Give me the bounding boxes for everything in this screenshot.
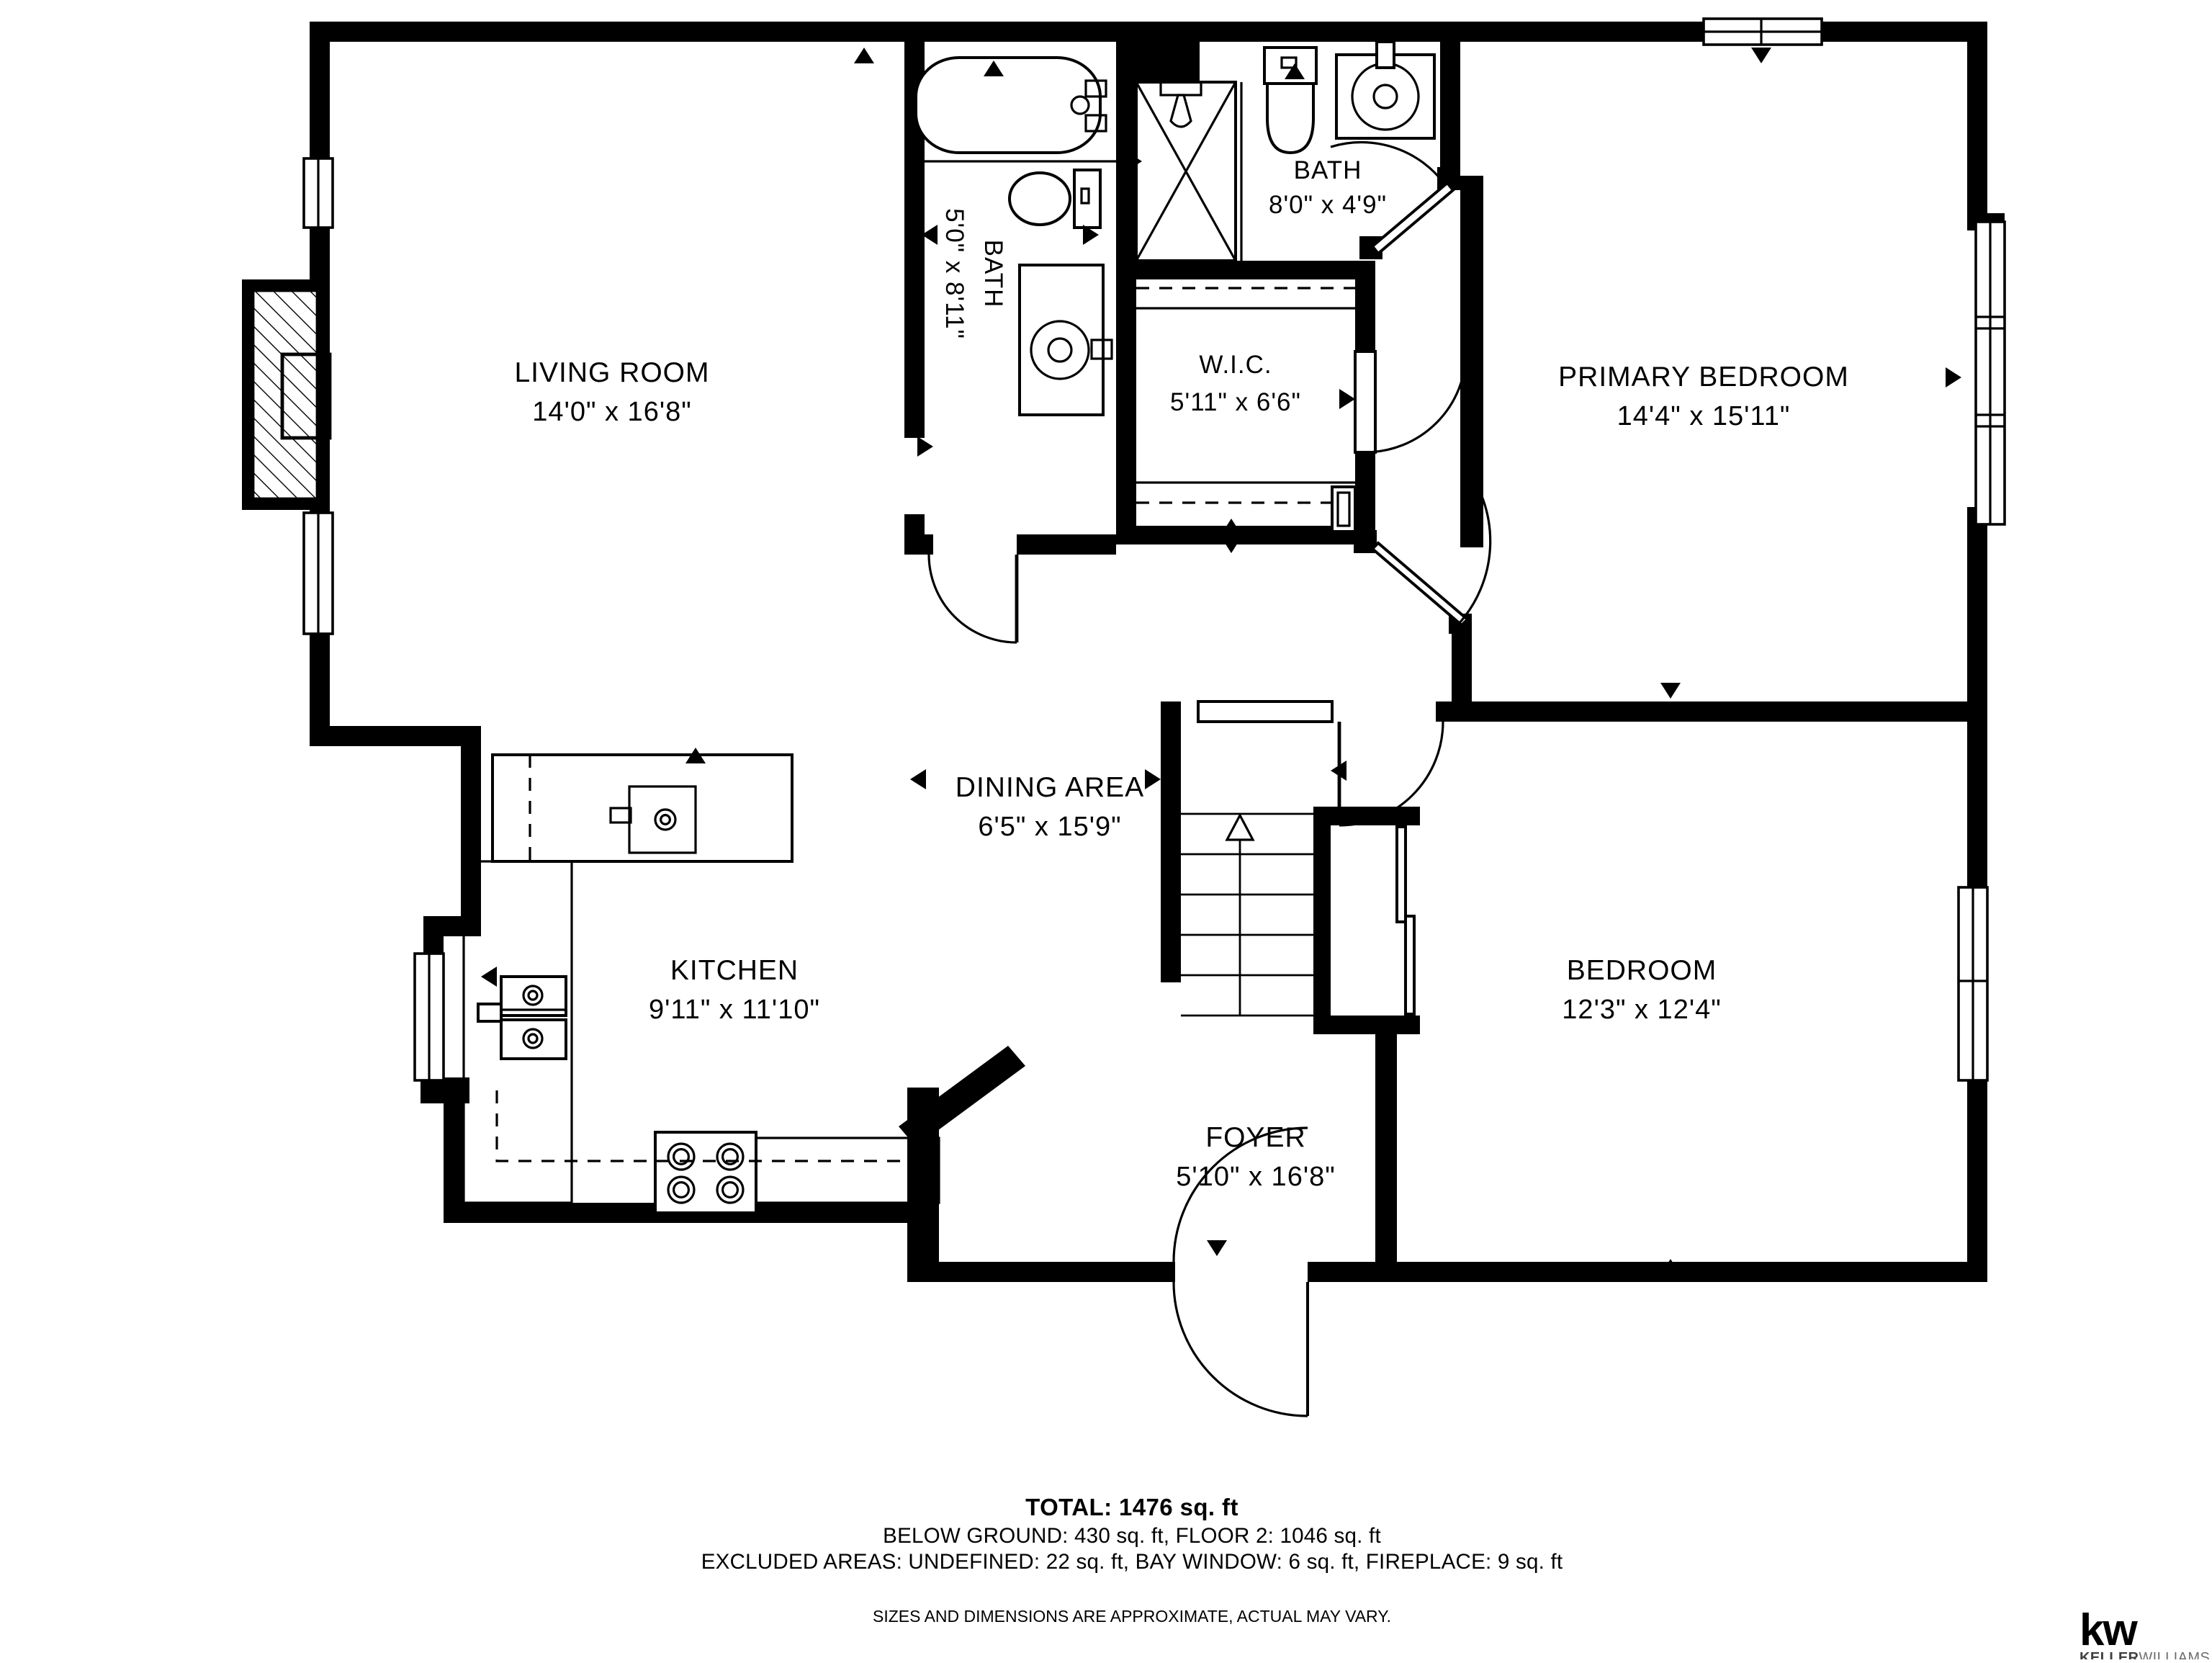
- wall-shower-top-block: [1116, 42, 1200, 82]
- wall-bath1-bottom-b: [1017, 534, 1116, 555]
- wall-kitchen-left-b: [444, 1103, 464, 1214]
- wall-bottom-left: [929, 1262, 1175, 1282]
- primary-top-window: [1704, 19, 1822, 45]
- foyer-label: FOYER: [1205, 1122, 1305, 1153]
- footer-excluded-line: EXCLUDED AREAS: UNDEFINED: 22 sq. ft, BA…: [701, 1550, 1563, 1574]
- wall-kitchen-step: [423, 916, 481, 936]
- bath1-label: BATH: [979, 240, 1007, 308]
- primary-bedroom-label: PRIMARY BEDROOM: [1558, 362, 1849, 393]
- wall-bath1-bottom-a: [904, 534, 933, 555]
- kw-logo-mark: kw: [2080, 1605, 2138, 1655]
- wall-foyer-right: [1375, 1034, 1397, 1262]
- sink-vanity-icon-bath2: [1336, 42, 1434, 138]
- footer-total: TOTAL: 1476 sq. ft: [1025, 1494, 1238, 1520]
- wall-closet-top: [1331, 807, 1420, 825]
- wall-stairs-closet: [1313, 807, 1331, 1034]
- wall-primary-stub: [1452, 625, 1472, 706]
- bedroom-window: [1959, 887, 1987, 1080]
- wall-wic-top: [1116, 261, 1375, 279]
- kitchen-window: [415, 954, 444, 1080]
- primary-bay-window: [1976, 222, 2005, 524]
- bedroom-label: BEDROOM: [1567, 955, 1717, 986]
- kitchen-label: KITCHEN: [670, 955, 799, 986]
- footer-areas-line: BELOW GROUND: 430 sq. ft, FLOOR 2: 1046 …: [883, 1524, 1381, 1548]
- wall-closet-bottom: [1313, 1016, 1420, 1034]
- shower-icon: [1136, 82, 1241, 261]
- wall-stairs-left: [1161, 701, 1181, 982]
- toilet-icon-bath1: [1010, 170, 1100, 228]
- stove-icon: [655, 1132, 756, 1213]
- footer-disclaimer: SIZES AND DIMENSIONS ARE APPROXIMATE, AC…: [873, 1607, 1391, 1626]
- dining-area-label: DINING AREA: [956, 772, 1144, 803]
- bath1-dims: 5'0" x 8'11": [940, 208, 968, 339]
- wall-bottom-right: [1308, 1262, 1987, 1282]
- living-window-1: [304, 158, 333, 228]
- wall-right-c: [1967, 1077, 1987, 1282]
- cased-opening-dining-hall: [1198, 701, 1332, 722]
- fireplace-icon: [242, 279, 330, 510]
- sink-vanity-icon-bath1: [1020, 265, 1112, 415]
- wall-wic-right-a: [1355, 261, 1375, 351]
- toilet-icon-bath2: [1264, 48, 1316, 153]
- floorplan-canvas: LIVING ROOM 14'0" x 16'8" BATH 5'0" x 8'…: [0, 0, 2212, 1659]
- foyer-dims: 5'10" x 16'8": [1176, 1162, 1335, 1192]
- living-window-2: [304, 513, 333, 634]
- kw-logo-name: KELLERWILLIAMS.: [2080, 1650, 2212, 1659]
- kitchen-dims: 9'11" x 11'10": [649, 995, 820, 1025]
- kitchen-island: [493, 755, 792, 861]
- wic-dims: 5'11" x 6'6": [1170, 388, 1301, 416]
- wall-primary-bedroom: [1436, 701, 1987, 722]
- wall-right-a: [1967, 22, 1987, 223]
- wall-living-step-h: [310, 726, 481, 746]
- hall-closet-icon: [1332, 487, 1355, 532]
- living-room-label: LIVING ROOM: [514, 357, 709, 388]
- wall-bath2-right: [1440, 42, 1460, 186]
- primary-bedroom-dims: 14'4" x 15'11": [1617, 401, 1791, 431]
- bedroom-dims: 12'3" x 12'4": [1562, 995, 1721, 1025]
- bath2-label: BATH: [1294, 156, 1362, 184]
- wic-label: W.I.C.: [1199, 351, 1272, 379]
- living-room-dims: 14'0" x 16'8": [532, 397, 691, 427]
- wall-bath1-wic: [1116, 261, 1136, 544]
- dining-area-dims: 6'5" x 15'9": [978, 812, 1121, 842]
- bath2-dims: 8'0" x 4'9": [1269, 191, 1387, 219]
